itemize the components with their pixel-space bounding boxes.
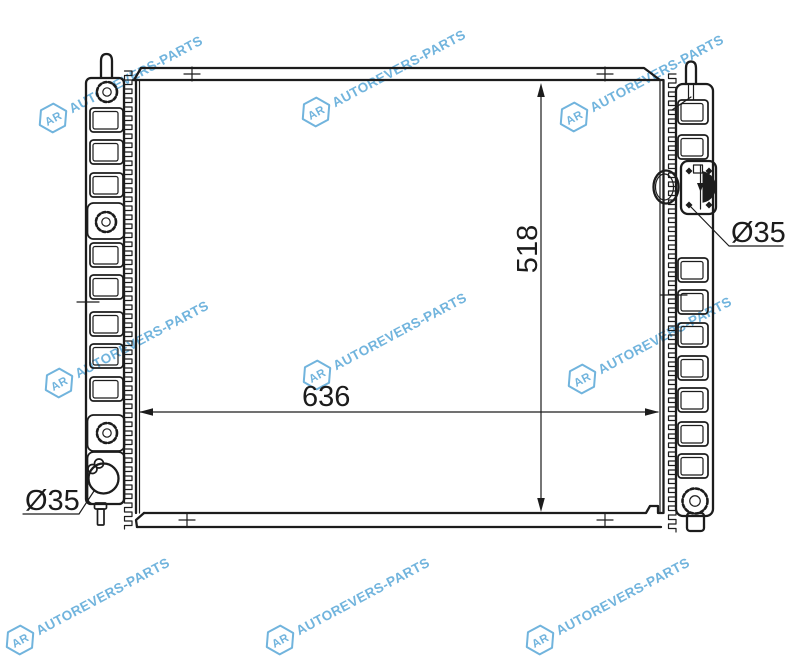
- left-tank-slot-inner: [93, 348, 118, 366]
- right-top-pin: [686, 62, 696, 85]
- right-tank-slot-inner: [681, 458, 703, 476]
- left-tank: [77, 54, 125, 525]
- arrow-down: [537, 498, 545, 512]
- ar-logo-text: AR: [270, 632, 291, 651]
- right-tank-slot-inner: [681, 262, 703, 280]
- left-tank-slot-inner: [93, 381, 118, 399]
- radiator-diagram: 636 518 Ø35 Ø35: [0, 0, 800, 600]
- ar-logo-text: AR: [10, 632, 31, 651]
- left-pipe-opening: [89, 464, 119, 494]
- radiator-drawing-page: { "page": { "background_color": "#ffffff…: [0, 0, 800, 600]
- radiator-core: [133, 68, 664, 527]
- left-serration: [125, 71, 133, 529]
- arrow-up: [537, 83, 545, 97]
- drain-plug-stem: [98, 509, 105, 525]
- left-tank-slot-inner: [93, 316, 118, 334]
- centerline-cross: [179, 513, 195, 527]
- top-bar-upper-line: [134, 68, 660, 80]
- left-tank-slot-inner: [93, 112, 118, 130]
- left-tank-slot-inner: [93, 279, 118, 297]
- right-tank-slot-inner: [681, 392, 703, 410]
- left-tank-slot-inner: [93, 144, 118, 162]
- left-top-pin: [101, 54, 112, 78]
- bottom-bar-upper-line: [144, 506, 663, 513]
- dimension-width-label: 636: [302, 381, 350, 413]
- right-tank-slot-inner: [681, 104, 703, 122]
- bottom-bar-left-step: [136, 513, 144, 527]
- left-tank-slot-inner: [93, 247, 118, 265]
- right-tank-slot-inner: [681, 426, 703, 444]
- left-tank-slot-inner: [93, 177, 118, 195]
- mounting-bolts: [96, 82, 708, 514]
- arrow-left: [139, 408, 153, 416]
- right-tank-slot-inner: [681, 294, 703, 312]
- pipe-diameter-label-right: Ø35: [731, 217, 786, 249]
- right-tank-slot-inner: [681, 139, 703, 157]
- ar-logo-text: AR: [530, 632, 551, 651]
- right-tank-slot-inner: [681, 360, 703, 378]
- arrow-right: [645, 408, 659, 416]
- flange-bolt: [706, 202, 713, 209]
- dimension-height-label: 518: [512, 225, 544, 273]
- tank-slots: [90, 100, 708, 478]
- right-tank-slot-inner: [681, 327, 703, 345]
- pipe-diameter-label-left: Ø35: [25, 485, 80, 517]
- centerline-cross: [597, 513, 613, 527]
- flange-bolt: [686, 168, 693, 175]
- centerline-marks: [179, 67, 613, 527]
- core-side-serrations: [125, 71, 677, 532]
